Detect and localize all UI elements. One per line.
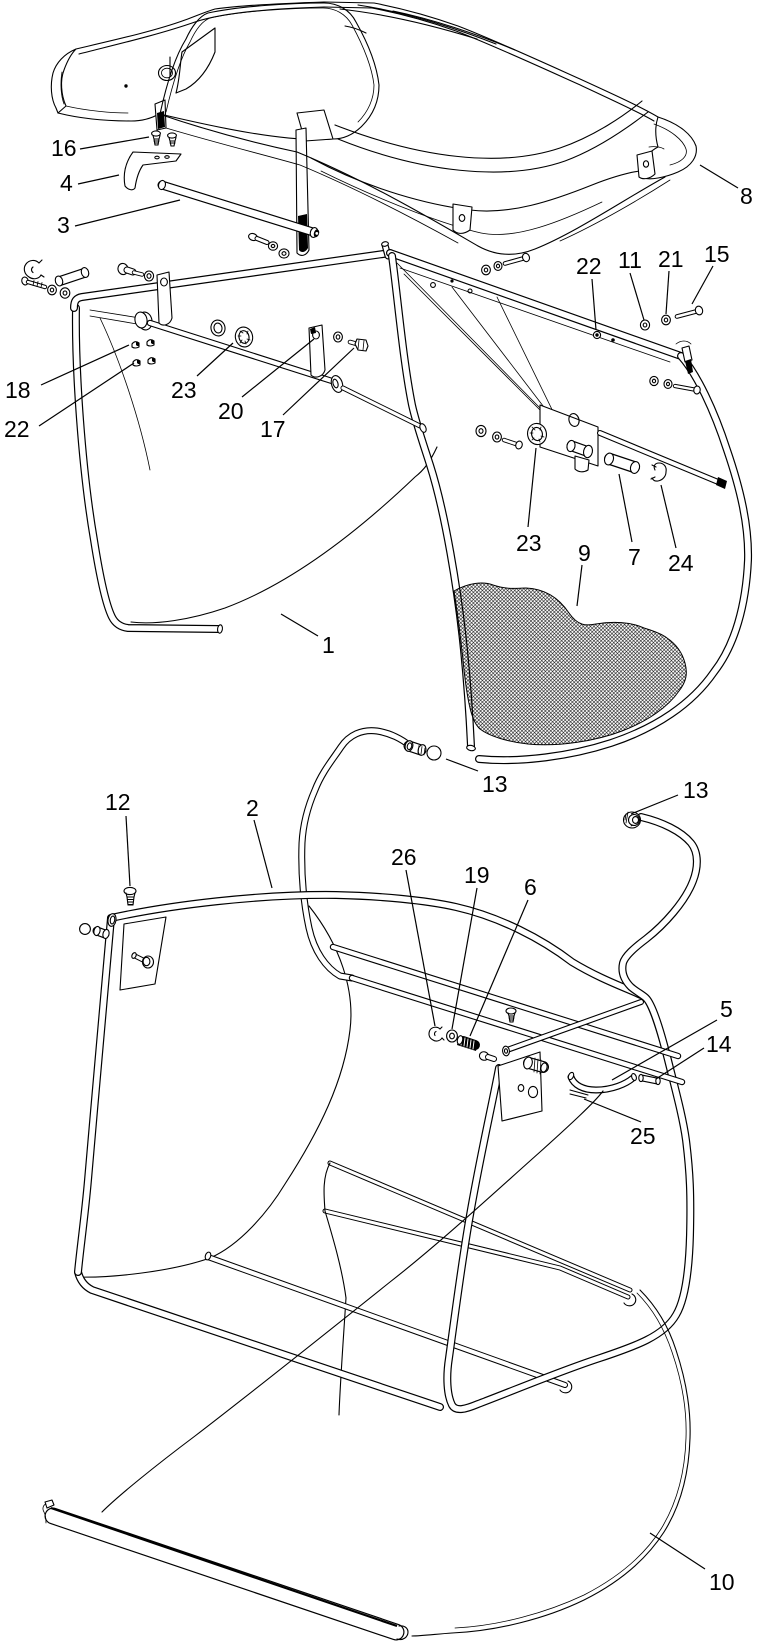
svg-text:2: 2 xyxy=(246,795,259,821)
svg-text:9: 9 xyxy=(578,540,591,566)
svg-text:14: 14 xyxy=(706,1031,732,1057)
svg-text:4: 4 xyxy=(60,170,73,196)
svg-text:20: 20 xyxy=(218,398,244,424)
svg-text:6: 6 xyxy=(524,874,537,900)
svg-text:15: 15 xyxy=(704,241,730,267)
svg-text:7: 7 xyxy=(628,544,641,570)
svg-text:25: 25 xyxy=(630,1123,656,1149)
svg-text:10: 10 xyxy=(709,1569,735,1595)
svg-text:26: 26 xyxy=(391,844,417,870)
svg-text:11: 11 xyxy=(618,247,642,273)
svg-text:13: 13 xyxy=(482,771,508,797)
svg-text:1: 1 xyxy=(322,632,335,658)
svg-text:19: 19 xyxy=(464,862,490,888)
svg-text:23: 23 xyxy=(171,377,197,403)
svg-text:23: 23 xyxy=(516,530,542,556)
svg-text:8: 8 xyxy=(740,183,753,209)
svg-text:12: 12 xyxy=(105,789,131,815)
svg-text:22: 22 xyxy=(576,253,602,279)
svg-text:5: 5 xyxy=(720,996,733,1022)
svg-text:22: 22 xyxy=(4,416,30,442)
svg-text:13: 13 xyxy=(683,777,709,803)
svg-text:18: 18 xyxy=(5,377,31,403)
svg-text:3: 3 xyxy=(57,212,70,238)
svg-text:21: 21 xyxy=(658,246,684,272)
svg-text:16: 16 xyxy=(51,135,77,161)
svg-text:24: 24 xyxy=(668,550,694,576)
svg-text:17: 17 xyxy=(260,416,286,442)
